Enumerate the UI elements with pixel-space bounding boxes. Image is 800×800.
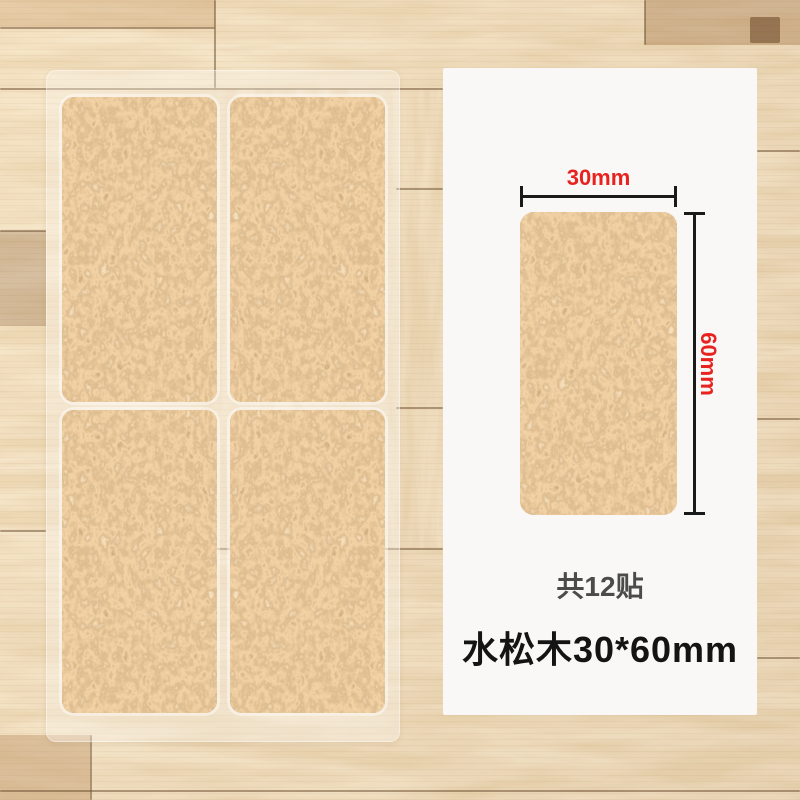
cork-pad — [62, 97, 217, 402]
plank-seam — [90, 735, 92, 800]
plank-seam — [644, 0, 646, 45]
plank-seam — [396, 188, 443, 190]
plank-seam — [757, 150, 800, 152]
product-photo-stage: 30mm 60mm 共12贴 水松木30*60mm — [0, 0, 800, 800]
cork-swatch — [520, 212, 677, 515]
plank-tint — [0, 231, 46, 326]
info-panel: 30mm 60mm 共12贴 水松木30*60mm — [443, 68, 757, 715]
cork-pad — [230, 410, 385, 713]
width-dimension-line — [520, 195, 677, 198]
height-dimension-text: 60mm — [695, 332, 721, 396]
product-title: 水松木30*60mm — [443, 631, 757, 669]
plank-seam — [757, 657, 800, 659]
sticker-sheet — [46, 70, 400, 742]
plank-seam — [0, 27, 215, 29]
height-dimension-label: 60mm — [691, 212, 725, 515]
plank-seam — [0, 230, 46, 232]
width-dimension-label: 30mm — [520, 166, 677, 190]
plank-tint — [750, 17, 780, 43]
plank-seam — [396, 407, 443, 409]
sheet-count-label: 共12贴 — [443, 572, 757, 602]
plank-seam — [0, 790, 800, 792]
plank-seam — [0, 530, 46, 532]
cork-pad — [230, 97, 385, 402]
cork-pad — [62, 410, 217, 713]
plank-tint — [0, 0, 215, 27]
plank-seam — [757, 418, 800, 420]
